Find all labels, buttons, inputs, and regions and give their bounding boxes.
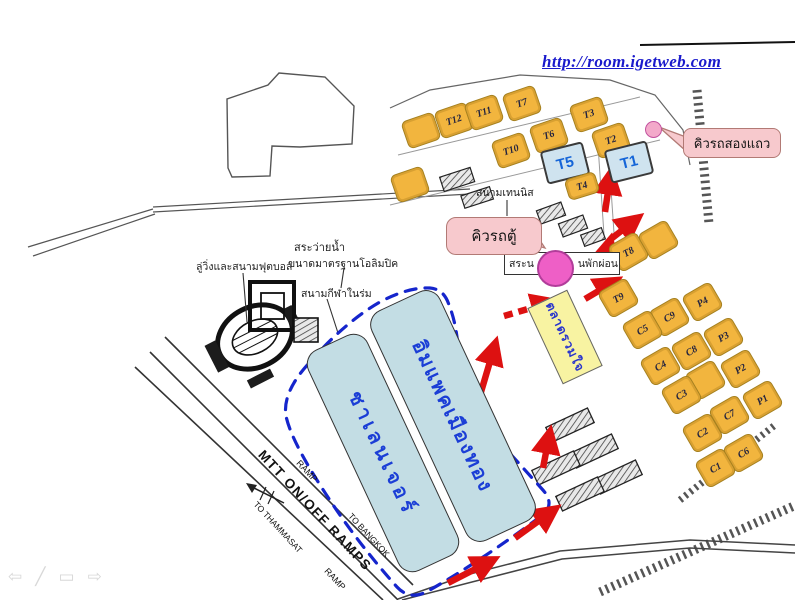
slideshow-controls: ⇦ ╱ ▭ ⇨	[8, 567, 102, 587]
pond-label-left: สระน	[509, 255, 534, 272]
songthaew-queue-spot	[645, 121, 662, 138]
north-buildings-outline	[227, 73, 354, 177]
stadium-track-icon	[198, 289, 317, 399]
songthaew-queue-callout-text: คิวรถสองแถว	[694, 133, 771, 154]
running-track-label: ลู่วิ่งและสนามฟุตบอล	[196, 258, 292, 275]
indoor-stadium-label: สนามกีฬาในร่ม	[301, 285, 372, 302]
swimming-pool-size-label: ขนาดมาตรฐานโอลิมปิค	[288, 255, 398, 272]
slide-menu-button[interactable]: ▭	[59, 567, 75, 587]
van-queue-spot	[537, 250, 574, 287]
presentation-slide: ชาเลนเจอร์ อิมแพคเมืองทอง ตลาดรวมใจ T12 …	[0, 0, 800, 600]
next-slide-button[interactable]: ⇨	[88, 567, 102, 587]
map-frame-line	[640, 42, 795, 45]
swimming-pool-label: สระว่ายน้ำ	[294, 238, 345, 256]
pen-tool-button[interactable]: ╱	[35, 567, 45, 587]
website-link[interactable]: http://room.igetweb.com	[542, 52, 721, 72]
previous-slide-button[interactable]: ⇦	[8, 567, 22, 587]
van-queue-callout-text: คิวรถตู้	[471, 224, 516, 248]
warehouse-rows	[532, 408, 642, 511]
van-queue-callout: คิวรถตู้	[446, 217, 542, 255]
songthaew-callout-tail	[659, 127, 686, 151]
pond-label-right: นพักผ่อน	[578, 255, 618, 272]
tennis-court-label: สนามเทนนิส	[476, 184, 534, 201]
indoor-stadium-icon	[294, 318, 318, 342]
songthaew-queue-callout: คิวรถสองแถว	[683, 128, 781, 158]
